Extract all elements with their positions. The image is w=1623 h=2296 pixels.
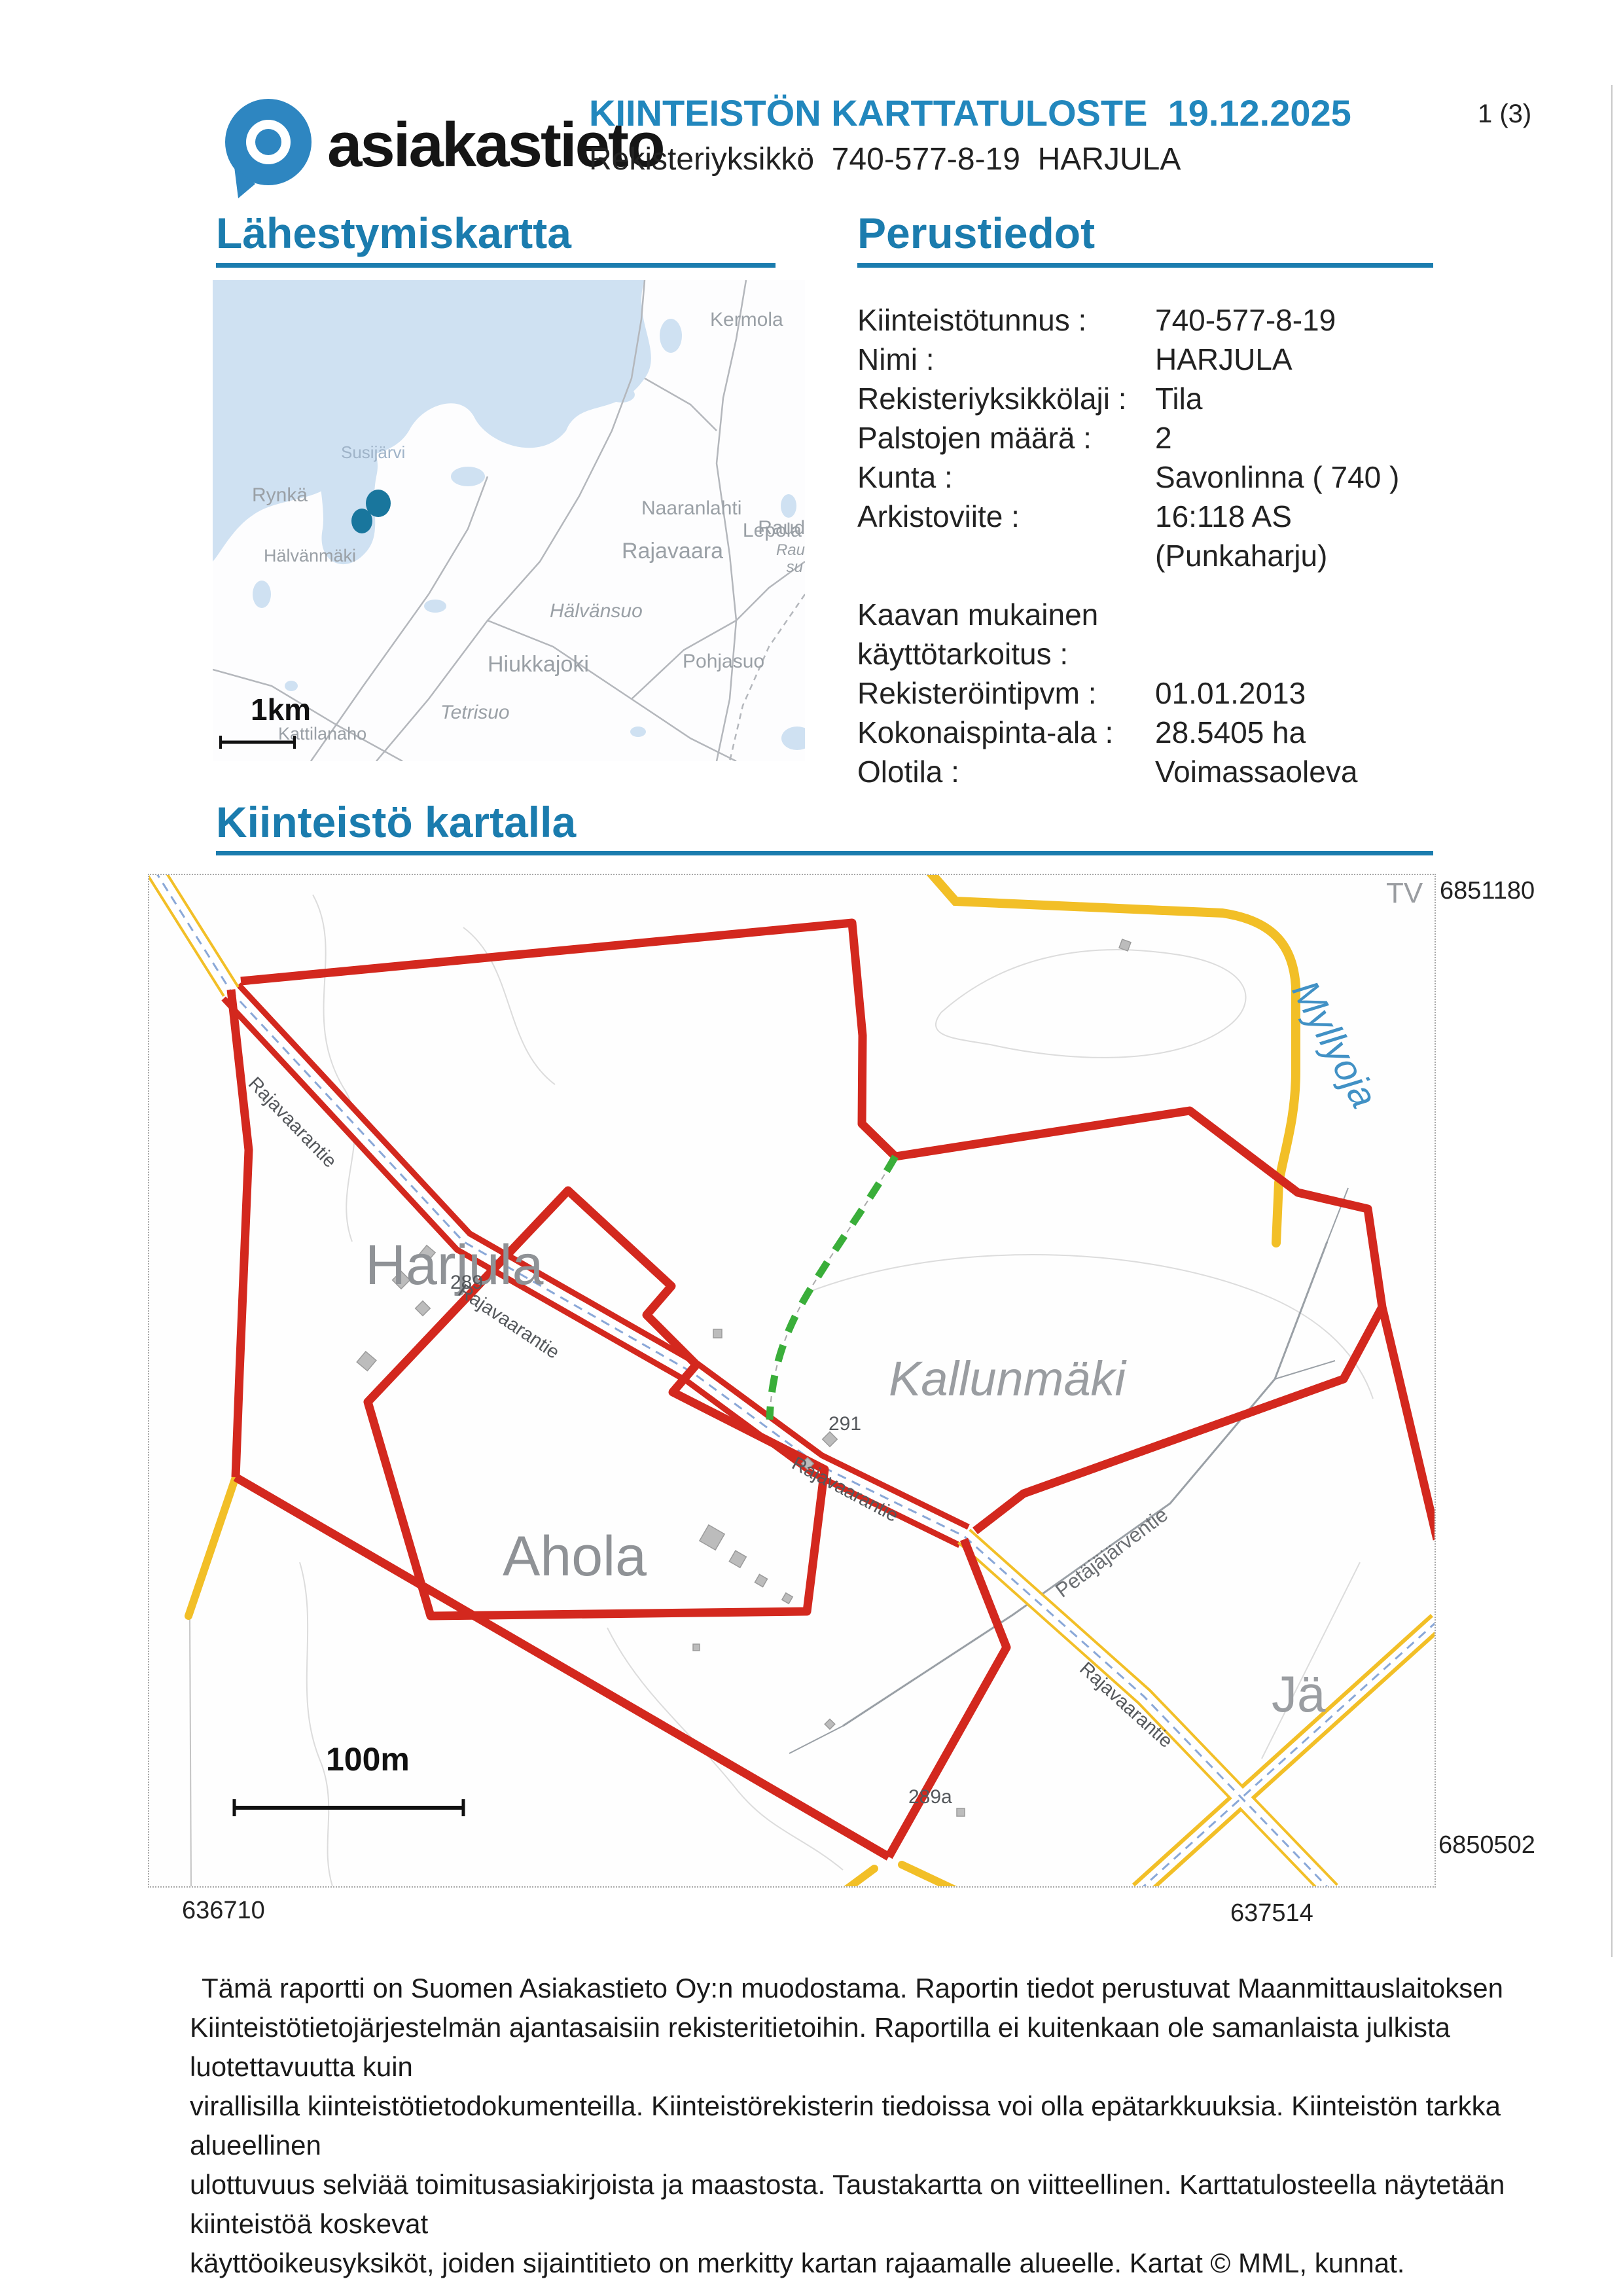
road-label-petajajarventie: Petäjäjärventie: [1051, 1503, 1172, 1602]
coordinate-bottom-right: 6850502: [1438, 1831, 1535, 1859]
document-title: KIINTEISTÖN KARTTATULOSTE 19.12.2025: [589, 92, 1351, 134]
info-value: HARJULA: [1155, 342, 1293, 377]
label-kallunmaki: Kallunmäki: [889, 1352, 1128, 1406]
scan-edge-line: [1611, 85, 1613, 1957]
footer-line: Kiinteistötietojärjestelmän ajantasaisii…: [190, 2008, 1538, 2087]
coordinate-bottom-mid: 637514: [1230, 1899, 1313, 1928]
scale-text: 100m: [326, 1741, 410, 1778]
info-label: Rekisteröintipvm :: [857, 675, 1097, 711]
label-naaranlahti: Naaranlahti: [641, 497, 741, 519]
property-map-scale-bar: 100m: [234, 1741, 463, 1816]
footer-line: Tämä raportti on Suomen Asiakastieto Oy:…: [190, 1969, 1538, 2008]
building-number-289: 289: [450, 1272, 483, 1293]
label-rajavaara: Rajavaara: [622, 539, 723, 564]
info-label: Kokonaispinta-ala :: [857, 715, 1113, 750]
yellow-roads: [188, 875, 1296, 1886]
info-label: Olotila :: [857, 754, 959, 789]
info-value: Tila: [1155, 381, 1202, 416]
page-indicator: 1 (3): [1478, 99, 1531, 129]
label-tetrisuo: Tetrisuo: [440, 702, 510, 723]
footer-line: käyttöoikeusyksiköt, joiden sijaintitiet…: [190, 2244, 1538, 2283]
green-dashed-path: [770, 1157, 895, 1420]
label-pohjasuo: Pohjasuo: [683, 651, 764, 672]
label-kermola: Kermola: [710, 309, 783, 331]
road-corridor-red-casing: [231, 992, 964, 1536]
contour-lines: [300, 895, 1373, 1886]
info-label: Kunta :: [857, 459, 953, 495]
info-value: (Punkaharju): [1155, 538, 1327, 573]
info-value: 740-577-8-19: [1155, 302, 1336, 338]
info-label: Arkistoviite :: [857, 499, 1020, 534]
footer-line: ulottuvuus selviää toimitusasiakirjoista…: [190, 2165, 1538, 2244]
basic-info-heading: Perustiedot: [857, 208, 1095, 258]
info-value: Voimassaoleva: [1155, 754, 1357, 789]
info-label: Palstojen määrä :: [857, 420, 1092, 456]
asiakastieto-logo: asiakastieto: [216, 95, 530, 206]
path-centerline-gray: [770, 1157, 895, 1420]
label-raud: Raud: [758, 517, 805, 539]
coordinate-top-right: 6851180: [1440, 877, 1535, 905]
label-hiukkajoki: Hiukkajoki: [488, 652, 589, 677]
info-value: 28.5405 ha: [1155, 715, 1306, 750]
footer-line: virallisilla kiinteistötietodokumenteill…: [190, 2087, 1538, 2165]
info-value: 2: [1155, 420, 1172, 456]
label-susijarvi: Susijärvi: [341, 442, 405, 462]
document-subtitle: Rekisteriyksikkö 740-577-8-19 HARJULA: [589, 141, 1181, 177]
info-label: käyttötarkoitus :: [857, 636, 1068, 672]
label-ahola: Ahola: [503, 1525, 647, 1588]
building-number-289a: 289a: [908, 1786, 952, 1808]
property-map: Harjula Ahola Kallunmäki Jä Myllyoja Raj…: [148, 874, 1436, 1888]
info-label: Rekisteriyksikkölaji :: [857, 381, 1127, 416]
label-tv-partial: TV: [1386, 877, 1423, 909]
info-label: Kaavan mukainen: [857, 597, 1098, 632]
info-label: Kiinteistötunnus :: [857, 302, 1086, 338]
approach-map-rule: [216, 263, 776, 268]
footer-disclaimer: Tämä raportti on Suomen Asiakastieto Oy:…: [190, 1969, 1538, 2283]
coordinate-bottom-left: 636710: [182, 1897, 265, 1925]
info-value: 16:118 AS: [1155, 499, 1292, 534]
label-halvanmaki: Hälvänmäki: [264, 546, 356, 565]
label-rynka: Rynkä: [252, 484, 308, 506]
approach-map: Kermola Susijärvi Rynkä Hälvänsuo Naaran…: [213, 280, 805, 761]
header: asiakastieto KIINTEISTÖN KARTTATULOSTE 1…: [0, 0, 1623, 216]
property-map-heading: Kiinteistö kartalla: [216, 797, 576, 847]
property-boundaries-red: [231, 923, 1435, 1857]
label-halvansuo: Hälvänsuo: [550, 600, 643, 622]
footpath-line: [190, 1616, 191, 1886]
building-number-291: 291: [829, 1413, 861, 1435]
info-value: 01.01.2013: [1155, 675, 1306, 711]
info-value: Savonlinna ( 740 ): [1155, 459, 1399, 495]
property-map-rule: [216, 851, 1433, 855]
label-ja-partial: Jä: [1272, 1665, 1326, 1723]
label-su: su: [787, 558, 803, 576]
label-rau: Rau: [776, 541, 805, 559]
basic-info-rule: [857, 263, 1433, 268]
location-pin-icon: [216, 95, 321, 206]
approach-map-heading: Lähestymiskartta: [216, 208, 571, 258]
info-label: Nimi :: [857, 342, 935, 377]
scale-text: 1km: [251, 692, 311, 726]
